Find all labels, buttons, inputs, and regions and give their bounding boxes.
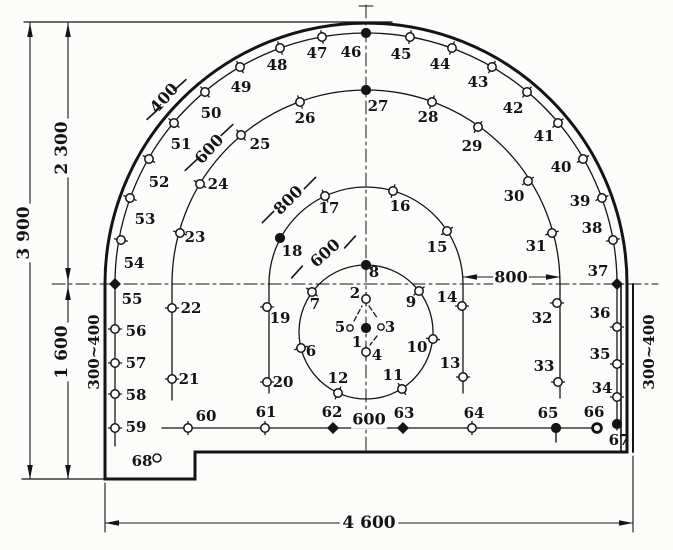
hole-3: [378, 324, 384, 330]
hole-58: [111, 390, 119, 398]
hole-label-61: 61: [256, 403, 277, 421]
hole-label-47: 47: [307, 44, 328, 62]
dim-600-ring1: 600: [306, 235, 344, 271]
hole-13: [459, 373, 467, 381]
hole-65: [551, 423, 560, 432]
hole-32: [553, 299, 561, 307]
hole-label-56: 56: [126, 322, 147, 340]
hole-label-58: 58: [126, 386, 147, 404]
hole-41: [554, 119, 562, 127]
hole-34: [613, 393, 621, 401]
hole-31: [548, 229, 556, 237]
hole-label-44: 44: [430, 55, 451, 73]
hole-59: [111, 424, 119, 432]
hole-label-3: 3: [385, 318, 395, 336]
hole-label-57: 57: [126, 354, 147, 372]
arrow-4600-left: [105, 520, 119, 526]
hole-label-13: 13: [440, 354, 461, 372]
hole-label-25: 25: [250, 135, 271, 153]
hole-63: [397, 422, 409, 434]
hole-label-11: 11: [383, 366, 404, 384]
hole-42: [523, 88, 531, 96]
hole-label-37: 37: [588, 262, 609, 280]
arrow-1600-top: [65, 286, 71, 300]
hole-label-19: 19: [270, 309, 291, 327]
hole-label-64: 64: [464, 404, 485, 422]
arrow-800-left: [463, 274, 477, 280]
hole-label-10: 10: [407, 338, 428, 356]
hole-label-60: 60: [196, 407, 217, 425]
scanned-figure-page: 3 9002 3001 600300~400300~4004 600800600…: [0, 0, 673, 550]
hole-27: [361, 85, 370, 94]
hole-label-22: 22: [181, 299, 202, 317]
hole-21: [168, 375, 176, 383]
dim-600-bottom: 600: [352, 410, 385, 429]
blast-hole-pattern-diagram: 3 9002 3001 600300~400300~4004 600800600…: [0, 0, 673, 550]
hole-57: [111, 359, 119, 367]
hole-10: [429, 335, 437, 343]
hole-28: [428, 98, 436, 106]
hole-label-15: 15: [427, 238, 448, 256]
hole-56: [111, 325, 119, 333]
hole-2: [362, 295, 370, 303]
dim-tick-600r1-b: [292, 266, 303, 278]
hole-label-24: 24: [208, 175, 229, 193]
hole-33: [554, 378, 562, 386]
hole-label-62: 62: [322, 403, 343, 421]
dim-400-ring4: 400: [146, 79, 182, 117]
hole-11: [398, 385, 406, 393]
dim-tick-800r2-a: [304, 177, 315, 188]
hole-5: [347, 325, 353, 331]
hole-label-17: 17: [319, 199, 340, 217]
hole-label-63: 63: [394, 404, 415, 422]
hole-14: [458, 302, 466, 310]
hole-label-50: 50: [201, 104, 222, 122]
hole-label-16: 16: [390, 197, 411, 215]
hole-53: [126, 194, 134, 202]
arrow-3900-bottom: [27, 465, 33, 479]
dim-tick-600r1-a: [345, 236, 356, 248]
hole-23: [176, 229, 184, 237]
hole-label-67: 67: [609, 431, 630, 449]
hole-label-2: 2: [350, 284, 360, 302]
hole-25: [237, 131, 245, 139]
hole-67: [612, 419, 621, 428]
dim-1600: 1 600: [52, 325, 72, 378]
arrow-2300-top: [65, 23, 71, 37]
hole-label-68: 68: [132, 452, 153, 470]
hole-51: [170, 119, 178, 127]
hole-46: [361, 28, 370, 37]
hole-label-18: 18: [282, 242, 303, 260]
hole-label-48: 48: [267, 56, 288, 74]
hole-label-32: 32: [532, 309, 553, 327]
hole-label-46: 46: [341, 43, 362, 61]
hole-label-5: 5: [335, 318, 345, 336]
hole-label-54: 54: [124, 254, 145, 272]
hole-39: [598, 194, 606, 202]
hole-label-8: 8: [369, 263, 379, 281]
hole-label-28: 28: [418, 108, 439, 126]
hole-label-1: 1: [352, 333, 362, 351]
hole-4: [362, 348, 370, 356]
hole-label-27: 27: [368, 97, 389, 115]
hole-label-41: 41: [534, 127, 555, 145]
dim-300-400-right: 300~400: [640, 314, 658, 389]
hole-54: [117, 236, 125, 244]
dim-4600: 4 600: [342, 513, 395, 533]
dim-2300: 2 300: [52, 121, 72, 174]
hole-62: [327, 422, 339, 434]
hole-label-55: 55: [122, 290, 143, 308]
hole-label-66: 66: [584, 403, 605, 421]
hole-48: [276, 44, 284, 52]
dim-600-ring3: 600: [191, 130, 228, 167]
arrow-2300-bottom: [65, 268, 71, 282]
hole-29: [474, 123, 482, 131]
hole-label-23: 23: [185, 228, 206, 246]
hole-43: [488, 63, 496, 71]
arrow-3900-top: [27, 23, 33, 37]
hole-16: [389, 187, 397, 195]
hole-label-31: 31: [526, 237, 547, 255]
hole-12: [334, 389, 342, 397]
hole-20: [263, 378, 271, 386]
hole-label-40: 40: [551, 158, 572, 176]
dim-800-right: 800: [494, 268, 527, 287]
hole-24: [196, 180, 204, 188]
hole-label-6: 6: [306, 342, 316, 360]
hole-60: [184, 424, 192, 432]
hole-label-7: 7: [310, 295, 320, 313]
hole-50: [201, 88, 209, 96]
dim-tick-800r2-b: [262, 211, 273, 222]
arrow-800-right: [546, 274, 560, 280]
hole-52: [145, 155, 153, 163]
hole-6: [297, 344, 305, 352]
hole-label-9: 9: [406, 293, 416, 311]
hole-1: [361, 323, 370, 332]
hole-label-49: 49: [231, 78, 252, 96]
dim-800-ring2: 800: [269, 181, 306, 218]
hole-64: [468, 424, 476, 432]
cut-dash-5-2: [354, 306, 362, 321]
hole-44: [448, 44, 456, 52]
hole-label-39: 39: [570, 192, 591, 210]
dim-3900: 3 900: [14, 206, 34, 259]
hole-55: [109, 278, 121, 290]
hole-label-26: 26: [295, 109, 316, 127]
hole-label-36: 36: [590, 304, 611, 322]
cut-dash-3-4: [370, 336, 377, 345]
hole-label-12: 12: [328, 369, 349, 387]
hole-label-30: 30: [504, 187, 525, 205]
hole-label-59: 59: [126, 418, 147, 436]
hole-47: [318, 33, 326, 41]
hole-label-29: 29: [462, 137, 483, 155]
cut-dash-2-3: [369, 306, 378, 319]
hole-label-53: 53: [135, 210, 156, 228]
hole-label-43: 43: [468, 73, 489, 91]
arrow-4600-right: [619, 520, 633, 526]
hole-66: [593, 424, 602, 433]
hole-label-4: 4: [372, 346, 382, 364]
hole-label-45: 45: [391, 45, 412, 63]
arrow-1600-bottom: [65, 465, 71, 479]
hole-68: [153, 454, 161, 462]
dim-tick-600r3-a: [221, 125, 233, 136]
hole-49: [236, 63, 244, 71]
hole-label-42: 42: [503, 99, 524, 117]
hole-label-33: 33: [534, 357, 555, 375]
hole-22: [168, 304, 176, 312]
hole-label-34: 34: [592, 379, 613, 397]
hole-label-21: 21: [179, 370, 200, 388]
dim-tick-600r3-b: [185, 160, 197, 171]
hole-30: [524, 177, 532, 185]
hole-label-35: 35: [590, 345, 611, 363]
dim-300-400-left: 300~400: [85, 314, 103, 389]
hole-label-14: 14: [437, 288, 458, 306]
hole-40: [579, 155, 587, 163]
hole-label-20: 20: [273, 373, 294, 391]
hole-35: [613, 360, 621, 368]
hole-36: [613, 323, 621, 331]
hole-label-52: 52: [149, 173, 170, 191]
hole-label-51: 51: [171, 135, 192, 153]
hole-26: [296, 98, 304, 106]
hole-61: [261, 424, 269, 432]
hole-15: [443, 227, 451, 235]
hole-label-65: 65: [538, 404, 559, 422]
hole-45: [406, 33, 414, 41]
hole-38: [609, 236, 617, 244]
hole-label-38: 38: [582, 219, 603, 237]
